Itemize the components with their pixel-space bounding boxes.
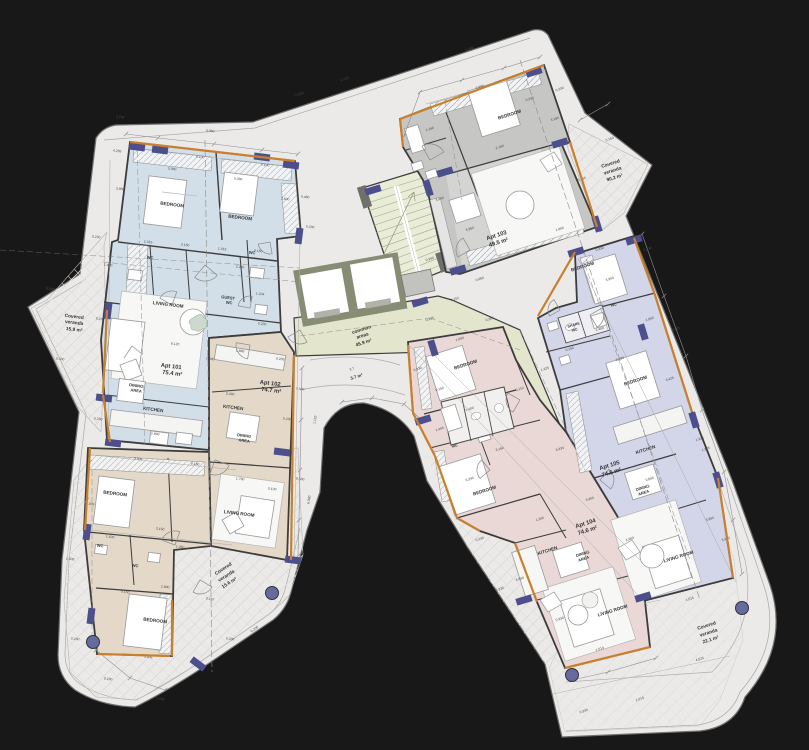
svg-text:WC: WC xyxy=(226,300,233,306)
svg-text:WC: WC xyxy=(147,255,154,261)
svg-text:WC: WC xyxy=(97,543,104,549)
svg-text:WC: WC xyxy=(132,563,139,569)
